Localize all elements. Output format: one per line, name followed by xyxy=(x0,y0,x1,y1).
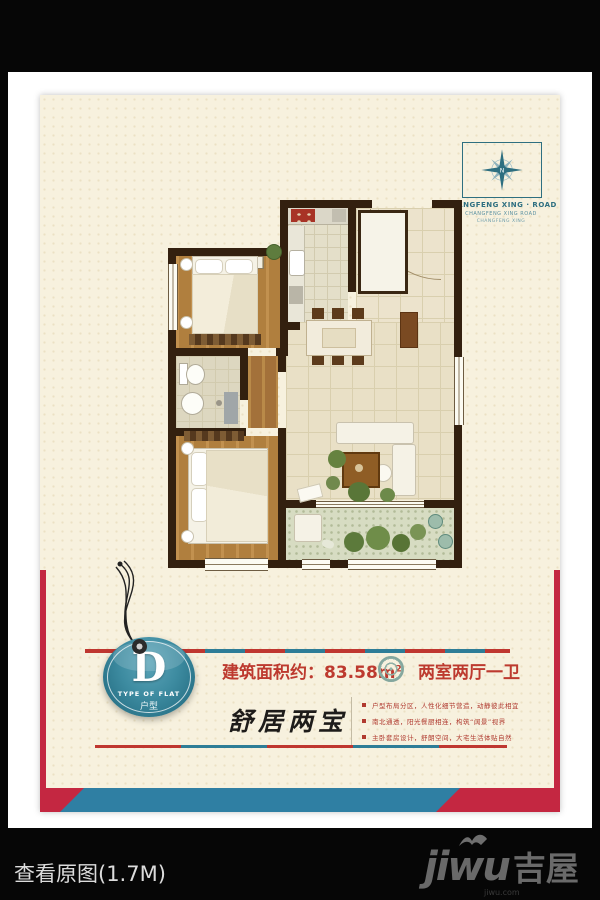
kitchen-appliance xyxy=(332,209,346,222)
shrub xyxy=(380,488,395,502)
brand-logo-box: N xyxy=(462,142,542,198)
floor-drain xyxy=(216,400,222,406)
stove xyxy=(291,209,315,222)
area-label: 建筑面积约： xyxy=(222,663,324,683)
kitchen-sink xyxy=(289,250,305,276)
shrub xyxy=(344,532,364,552)
window xyxy=(168,264,178,330)
right-red-strip xyxy=(554,570,560,788)
wall xyxy=(424,500,454,508)
wall xyxy=(454,425,462,568)
dining-chair xyxy=(312,308,324,319)
tv-cabinet xyxy=(400,312,418,348)
shrub xyxy=(328,450,346,468)
screenshot-stage: N CHANGFENG XING · ROAD CHANGFENG XING R… xyxy=(0,0,600,900)
nightstand xyxy=(180,258,193,271)
nightstand xyxy=(181,530,194,543)
pillow xyxy=(225,259,253,274)
bench xyxy=(294,514,322,542)
selling-point: 户型布局分区，人性化细节营造，动静彼此相宜 xyxy=(362,700,512,710)
area-info: 建筑面积约：83.58m2 xyxy=(222,658,402,683)
shrub xyxy=(326,476,340,490)
wall xyxy=(280,200,288,356)
wall xyxy=(436,560,462,568)
selling-point: 主卧套房设计，舒朗空间，大宅生活体贴自然 xyxy=(362,732,512,742)
left-black-edge xyxy=(0,72,8,828)
bullet-text: 主卧套房设计，舒朗空间，大宅生活体贴自然 xyxy=(372,732,512,742)
badge-grommet xyxy=(132,639,147,654)
jiwu-wordmark: jiwu吉屋 xyxy=(424,842,579,890)
wall xyxy=(348,208,356,292)
bullet-icon xyxy=(362,703,366,707)
selling-points: 户型布局分区，人性化细节营造，动静彼此相宜 南北通透，阳光餐厨相连，构筑“阔景”… xyxy=(362,700,512,748)
dining-chair xyxy=(352,308,364,319)
rose-seal-icon xyxy=(378,656,404,682)
bullet-text: 户型布局分区，人性化细节营造，动静彼此相宜 xyxy=(372,700,519,710)
bottom-ribbon xyxy=(40,788,560,812)
washbasin xyxy=(181,392,204,415)
type-badge: D TYPE OF FLAT 户型 xyxy=(103,637,195,717)
shrub xyxy=(410,524,426,540)
wall xyxy=(278,356,286,372)
kitchen-appliance xyxy=(289,286,303,304)
vertical-divider xyxy=(351,697,352,745)
wall xyxy=(168,330,176,568)
left-red-strip xyxy=(40,570,46,788)
badge-cjk: 户型 xyxy=(103,699,195,712)
pillow xyxy=(195,259,223,274)
bullet-icon xyxy=(362,719,366,723)
sofa xyxy=(392,444,416,496)
shrub xyxy=(348,482,370,502)
bath-mat xyxy=(224,392,238,424)
window xyxy=(205,558,268,571)
wall xyxy=(168,348,248,356)
right-black-edge xyxy=(592,72,600,828)
top-black-bar xyxy=(0,0,600,72)
rug xyxy=(189,334,261,345)
entry-closet xyxy=(358,210,408,294)
dining-table-center xyxy=(322,328,356,348)
dining-chair xyxy=(332,308,344,319)
layout-info: 两室两厅一卫 xyxy=(418,658,520,683)
badge-letter: D xyxy=(103,650,195,686)
wall xyxy=(280,200,372,208)
wall xyxy=(168,560,205,568)
badge-subtitle: TYPE OF FLAT xyxy=(103,690,195,698)
wall xyxy=(330,560,348,568)
shrub xyxy=(366,526,390,550)
duvet xyxy=(206,450,268,542)
bottom-ribbon-blue xyxy=(60,788,460,812)
hall-floor xyxy=(248,356,278,428)
compass-rose-icon: N xyxy=(480,148,524,192)
window xyxy=(348,559,436,570)
bullet-icon xyxy=(362,735,366,739)
nightstand xyxy=(180,316,193,329)
wall xyxy=(278,428,286,568)
thin-accent-line xyxy=(95,745,507,748)
wall xyxy=(168,248,176,264)
selling-point: 南北通透，阳光餐厨相连，构筑“阔景”视界 xyxy=(362,716,512,726)
jiwu-latin: jiwu xyxy=(424,844,509,890)
plant xyxy=(266,244,282,260)
bullet-text: 南北通透，阳光餐厨相连，构筑“阔景”视界 xyxy=(372,716,506,726)
jiwu-cjk: 吉屋 xyxy=(513,849,579,888)
duvet xyxy=(192,274,258,334)
compass-n: N xyxy=(500,167,505,174)
jiwu-watermark: jiwu吉屋 jiwu.com xyxy=(424,832,594,898)
window xyxy=(454,357,464,425)
potted-plant xyxy=(438,534,453,549)
sofa xyxy=(336,422,414,444)
view-original-button[interactable]: 查看原图(1.7M) xyxy=(14,858,166,888)
balcony-slider-glass xyxy=(316,501,424,508)
shrub xyxy=(392,534,410,552)
teapot xyxy=(355,464,363,472)
rug xyxy=(184,431,244,441)
window xyxy=(302,559,330,570)
wall xyxy=(288,322,300,330)
jiwu-site: jiwu.com xyxy=(484,888,520,897)
potted-plant xyxy=(428,514,443,529)
nightstand xyxy=(181,442,194,455)
wall xyxy=(240,356,248,400)
wall xyxy=(276,348,288,356)
wall xyxy=(454,200,462,357)
toilet-bowl xyxy=(186,364,205,385)
slogan: 舒居两宝 xyxy=(228,702,348,738)
